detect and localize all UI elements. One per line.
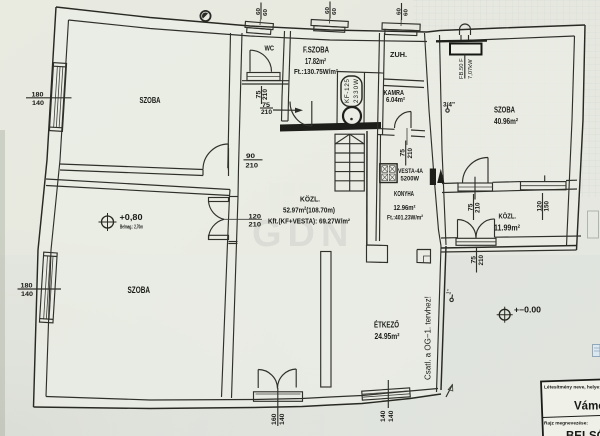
svg-text:6.04m²: 6.04m² xyxy=(386,97,406,104)
svg-text:KAMRA: KAMRA xyxy=(384,88,405,97)
svg-text:52.97m²(108.70m): 52.97m²(108.70m) xyxy=(283,206,335,215)
svg-text:Létesítmény neve, helye:: Létesítmény neve, helye: xyxy=(544,385,600,391)
svg-text:WC: WC xyxy=(265,44,275,53)
svg-text:Belmag.: 2,70m: Belmag.: 2,70m xyxy=(120,225,143,231)
svg-text:210: 210 xyxy=(262,89,269,100)
svg-text:Kft.(KF+VESTA): 69.27W/m²: Kft.(KF+VESTA): 69.27W/m² xyxy=(268,217,351,226)
svg-text:60: 60 xyxy=(263,9,269,16)
svg-text:5200W: 5200W xyxy=(401,176,420,183)
svg-text:17.82m²: 17.82m² xyxy=(305,57,326,66)
svg-text:11.99m²: 11.99m² xyxy=(494,224,520,233)
svg-text:SZOBA: SZOBA xyxy=(494,106,515,115)
svg-text:140: 140 xyxy=(279,413,286,425)
svg-text:+−0.00: +−0.00 xyxy=(514,306,542,315)
svg-text:24.95m²: 24.95m² xyxy=(375,332,400,341)
svg-text:3/4": 3/4" xyxy=(443,102,455,109)
svg-text:Ft.:130.75W/m²: Ft.:130.75W/m² xyxy=(294,67,339,76)
svg-text:7,07kW: 7,07kW xyxy=(468,59,474,79)
svg-text:60: 60 xyxy=(332,8,338,15)
svg-text:FB.50 F: FB.50 F xyxy=(459,58,465,79)
svg-text:F.SZOBA: F.SZOBA xyxy=(303,46,329,55)
svg-text:Vámos: Vámos xyxy=(574,401,600,413)
svg-text:210: 210 xyxy=(408,147,414,158)
svg-text:Ft.:401.23W/m²: Ft.:401.23W/m² xyxy=(387,215,424,222)
svg-text:140: 140 xyxy=(32,100,44,107)
svg-text:VESTA-4A: VESTA-4A xyxy=(398,168,423,175)
svg-text:KÖZL.: KÖZL. xyxy=(300,195,320,204)
svg-text:ZUH.: ZUH. xyxy=(390,50,407,59)
svg-text:90: 90 xyxy=(246,153,255,160)
svg-text:2330W: 2330W xyxy=(353,79,360,103)
svg-text:KF-125: KF-125 xyxy=(344,78,351,103)
svg-text:210: 210 xyxy=(261,109,272,116)
svg-text:SZOBA: SZOBA xyxy=(140,95,161,105)
svg-text:SZOBA: SZOBA xyxy=(128,285,151,295)
svg-text:Rajz megnevezése:: Rajz megnevezése: xyxy=(544,421,588,427)
svg-text:150: 150 xyxy=(545,200,551,211)
svg-text:Csatl. a OG−1. tervhez!: Csatl. a OG−1. tervhez! xyxy=(424,296,433,380)
svg-text:BELSŐ: BELSŐ xyxy=(566,430,600,436)
svg-text:60: 60 xyxy=(403,9,409,16)
svg-text:+0,80: +0,80 xyxy=(120,213,144,222)
svg-text:210: 210 xyxy=(246,163,259,170)
svg-text:KÖZL.: KÖZL. xyxy=(499,212,517,221)
svg-text:140: 140 xyxy=(388,410,395,422)
svg-text:210: 210 xyxy=(249,221,262,228)
svg-text:140: 140 xyxy=(380,410,387,422)
svg-text:210: 210 xyxy=(479,254,485,265)
svg-text:120: 120 xyxy=(249,213,262,220)
svg-text:ÉTKEZŐ: ÉTKEZŐ xyxy=(374,321,399,330)
svg-text:40.96m²: 40.96m² xyxy=(494,117,518,126)
svg-text:KONYHA: KONYHA xyxy=(394,191,414,198)
svg-text:210: 210 xyxy=(476,202,482,213)
svg-text:140: 140 xyxy=(21,291,33,298)
svg-text:160: 160 xyxy=(271,413,278,425)
svg-text:12.96m²: 12.96m² xyxy=(394,203,416,212)
